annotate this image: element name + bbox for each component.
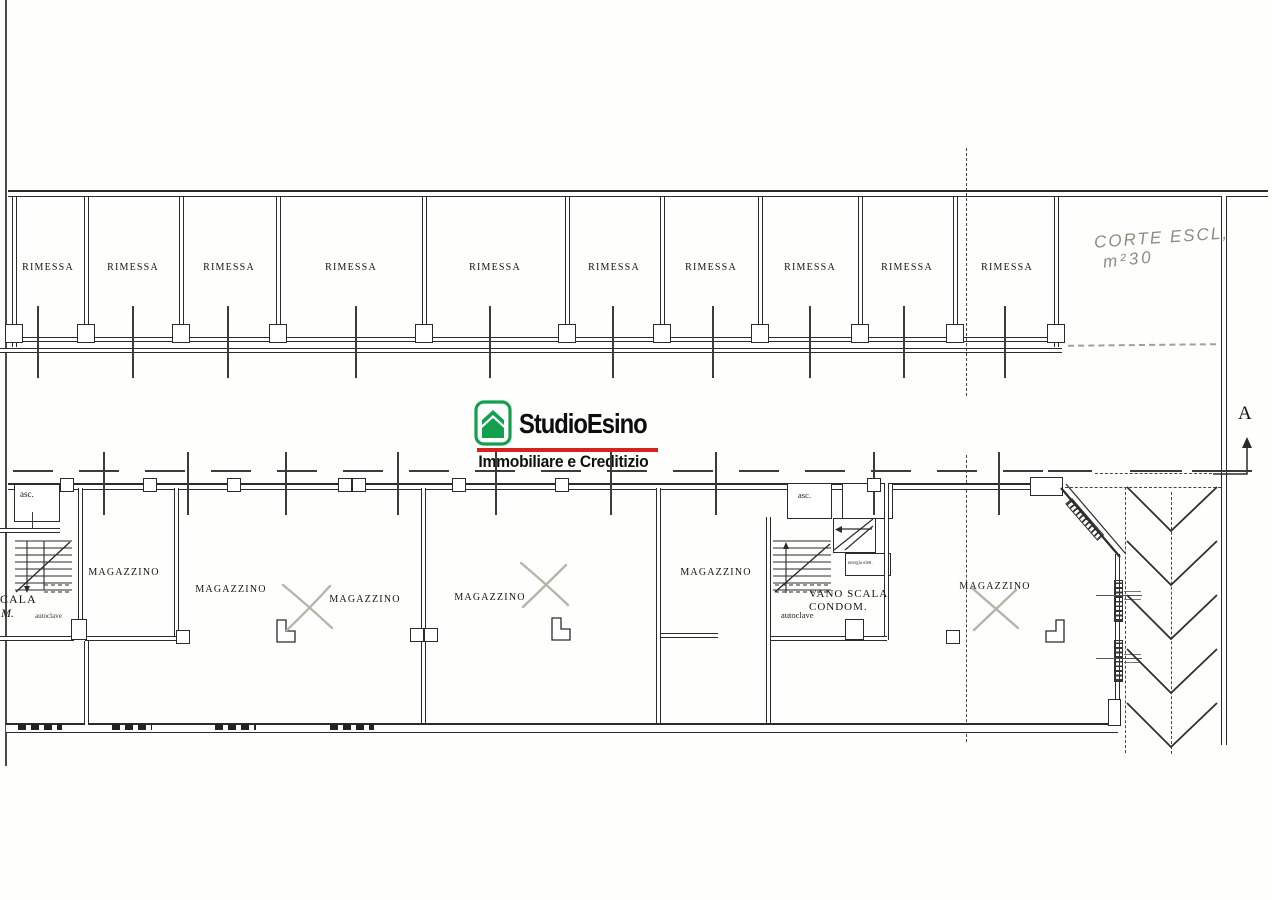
garage-partition-wall <box>953 197 958 325</box>
room1-right-wall <box>174 488 179 638</box>
annex-lower-partition <box>84 641 89 725</box>
room-label-rimessa: RIMESSA <box>203 262 255 273</box>
section-arrow <box>1213 437 1252 474</box>
lower-partition-wall <box>766 517 771 723</box>
masonry-window-marks <box>18 724 62 730</box>
dimension-tick <box>903 306 905 378</box>
stairwell-right-wall <box>884 483 889 640</box>
room-label-rimessa: RIMESSA <box>981 262 1033 273</box>
logo-brand-text: StudioEsino <box>519 408 647 440</box>
door-jamb-square <box>227 478 241 492</box>
dimension-tick <box>132 306 134 378</box>
door-jamb-square <box>424 628 438 642</box>
garage-door-jamb <box>851 324 869 343</box>
door-jamb-square <box>176 630 190 644</box>
garage-partition-wall <box>84 197 89 325</box>
ramp-chevron <box>1127 487 1217 531</box>
dimension-tick <box>712 306 714 378</box>
dimension-tick <box>495 452 497 515</box>
garage-top-wall <box>8 190 1268 197</box>
window-hatch-upper <box>1114 580 1123 622</box>
room-label-magazzino: MAGAZZINO <box>329 594 400 605</box>
ramp-chevron <box>1127 595 1217 639</box>
dimension-tick <box>227 306 229 378</box>
left-staircase <box>15 541 72 593</box>
elevator-right-box <box>787 483 832 519</box>
dimension-tick <box>715 452 717 515</box>
dimension-dash <box>409 470 449 472</box>
dimension-dash <box>673 470 713 472</box>
garage-door-jamb <box>269 324 287 343</box>
door-jamb-square <box>60 478 74 492</box>
room-label-rimessa: RIMESSA <box>22 262 74 273</box>
dimension-dash <box>343 470 383 472</box>
dimension-tick <box>397 452 399 515</box>
pencil-x-mark-1 <box>283 585 332 630</box>
autoclave-right-label: autoclave <box>781 610 814 620</box>
stairwell-bottom-wall <box>770 636 887 641</box>
stairwell-door-jamb <box>845 619 864 640</box>
dimension-dash <box>1192 470 1252 472</box>
garage-door-jamb <box>5 324 23 343</box>
door-jamb-square <box>946 630 960 644</box>
autoclave-left-label: autoclave <box>35 612 62 620</box>
dimension-dash <box>541 470 581 472</box>
garage-partition-wall <box>276 197 281 325</box>
room4-bottom-wall <box>660 633 718 638</box>
dimension-tick <box>187 452 189 515</box>
lower-bottom-right-jamb <box>1108 699 1121 726</box>
garage-partition-wall <box>758 197 763 325</box>
masonry-window-marks <box>330 724 374 730</box>
stairwell-label-line1: VANO SCALA <box>809 588 888 600</box>
dimension-tick <box>103 452 105 515</box>
column-l-2 <box>552 618 570 640</box>
masonry-window-marks <box>215 724 256 730</box>
dim-mark-text-2b <box>1124 662 1141 663</box>
window-hatch-lower <box>1114 640 1123 682</box>
garage-door-jamb <box>558 324 576 343</box>
garage-partition-wall <box>858 197 863 325</box>
room-label-rimessa: RIMESSA <box>325 262 377 273</box>
dimension-tick <box>355 306 357 378</box>
pencil-x-mark-2 <box>521 563 568 607</box>
garage-partition-wall <box>660 197 665 325</box>
garage-door-jamb <box>172 324 190 343</box>
courtyard-note-line1: CORTE ESCL, <box>1093 223 1229 252</box>
column-l-1 <box>277 620 295 642</box>
dimension-dash <box>937 470 977 472</box>
energia-label: energia elett. <box>848 561 873 566</box>
dimension-tick <box>37 306 39 378</box>
dimension-tick <box>612 306 614 378</box>
garage-partition-wall <box>179 197 184 325</box>
dim-mark-line-1 <box>1096 595 1142 596</box>
room-label-rimessa: RIMESSA <box>784 262 836 273</box>
stairwell-label-line2: CONDOM. <box>809 601 868 613</box>
diagonal-wall <box>1061 484 1125 557</box>
door-jamb-square <box>555 478 569 492</box>
lower-partition-wall <box>421 488 426 723</box>
dimension-dash <box>145 470 185 472</box>
ramp-chevron <box>1127 541 1217 585</box>
dimension-dash <box>805 470 845 472</box>
door-jamb-square <box>143 478 157 492</box>
lower-top-wall-end-jamb <box>1030 477 1063 496</box>
masonry-window-marks <box>112 724 152 730</box>
courtyard-pencil-line <box>1068 343 1216 347</box>
dimension-dash <box>607 470 647 472</box>
ramp-chevron <box>1127 703 1217 747</box>
room-label-rimessa: RIMESSA <box>107 262 159 273</box>
ramp-chevron-hatch <box>1127 487 1217 747</box>
studio-esino-logo: StudioEsino Immobiliare e Creditizio <box>474 400 662 476</box>
annex-door-jamb <box>71 619 87 640</box>
room-label-rimessa: RIMESSA <box>469 262 521 273</box>
door-jamb-square <box>410 628 424 642</box>
garage-door-jamb <box>1047 324 1065 343</box>
room-label-rimessa: RIMESSA <box>685 262 737 273</box>
elevator-tick <box>32 512 33 529</box>
garage-door-jamb <box>751 324 769 343</box>
door-jamb-square <box>867 478 881 492</box>
elevator-right-label: asc. <box>798 490 811 500</box>
section-line-lower <box>966 455 967 742</box>
garage-partition-wall <box>565 197 570 325</box>
room-label-magazzino: MAGAZZINO <box>959 581 1030 592</box>
door-jamb-square <box>452 478 466 492</box>
dimension-dash <box>1003 470 1043 472</box>
room-label-magazzino: MAGAZZINO <box>195 584 266 595</box>
dimension-dash <box>277 470 317 472</box>
room-label-magazzino: MAGAZZINO <box>680 567 751 578</box>
ramp-top-dashed <box>1065 487 1221 488</box>
section-marker-label: A <box>1238 403 1252 425</box>
section-line-upper <box>966 148 967 396</box>
garage-door-jamb <box>415 324 433 343</box>
door-jamb-square <box>338 478 352 492</box>
ramp-left-dashed <box>1125 487 1126 753</box>
dim-mark-line-2 <box>1096 658 1142 659</box>
annex-bottom-wall <box>0 636 74 641</box>
window-hatch-diagonal <box>1065 498 1104 541</box>
annex-mid-wall <box>0 528 60 533</box>
dimension-tick <box>809 306 811 378</box>
garage-door-jamb <box>946 324 964 343</box>
room1-bottom-wall <box>85 636 177 641</box>
dim-mark-text-1a <box>1124 591 1141 592</box>
room-label-magazzino: MAGAZZINO <box>454 592 525 603</box>
ramp-chevron <box>1127 649 1217 693</box>
dim-mark-text-1b <box>1124 599 1141 600</box>
dimension-dash <box>211 470 251 472</box>
pencil-x-mark-3 <box>972 588 1018 630</box>
dim-mark-text-2a <box>1124 654 1141 655</box>
garage-door-line <box>14 337 1058 342</box>
dimension-tick <box>1004 306 1006 378</box>
lower-bottom-wall <box>6 723 1118 733</box>
dimension-tick <box>610 452 612 515</box>
dimension-dash <box>871 470 911 472</box>
dimension-tick <box>998 452 1000 515</box>
cut-text-line2: M. <box>1 606 14 621</box>
dimension-tick <box>489 306 491 378</box>
dimension-dash <box>739 470 779 472</box>
room-label-magazzino: MAGAZZINO <box>88 567 159 578</box>
dimension-dash <box>1048 470 1092 472</box>
dimension-dash <box>1130 470 1182 472</box>
garage-door-jamb <box>77 324 95 343</box>
lower-partition-wall <box>656 488 661 723</box>
floor-plan-canvas: CORTE ESCL, m²30 A asc. CALA M. autoclav… <box>0 0 1272 900</box>
garage-door-jamb <box>653 324 671 343</box>
garage-partition-wall <box>422 197 427 325</box>
dimension-tick <box>285 452 287 515</box>
room-label-rimessa: RIMESSA <box>588 262 640 273</box>
cut-text-line1: CALA <box>0 592 37 607</box>
dimension-dash <box>79 470 119 472</box>
courtyard-note-line2: m²30 <box>1102 247 1155 272</box>
stair-flight-box <box>833 518 876 553</box>
dimension-dash <box>13 470 53 472</box>
scan-edge-line <box>5 0 7 766</box>
elevator-left-label: asc. <box>20 489 34 499</box>
door-jamb-square <box>352 478 366 492</box>
house-icon <box>474 400 512 446</box>
ramp-center-line <box>1171 492 1172 754</box>
logo-red-underline <box>477 448 658 452</box>
room-label-rimessa: RIMESSA <box>881 262 933 273</box>
column-l-3 <box>1046 620 1064 642</box>
room1-left-wall <box>78 488 83 638</box>
center-dash-line <box>1095 473 1212 474</box>
